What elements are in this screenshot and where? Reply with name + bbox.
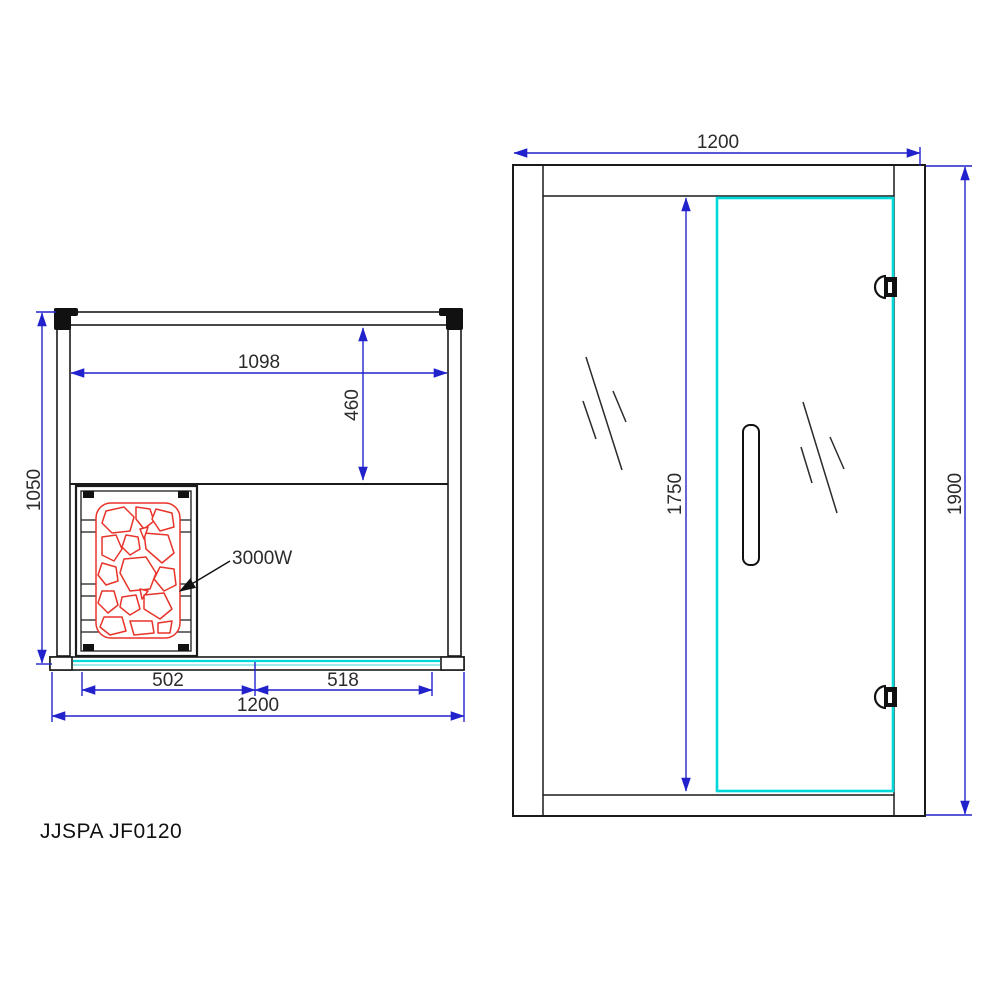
dim-plan-overall-width-value: 1200 [237, 695, 279, 716]
dim-bench-depth: 460 [342, 328, 363, 480]
heater-bracket [83, 644, 94, 651]
door-hinge-top [875, 276, 897, 298]
drawing-canvas: 3000W 1050 1098 460 [0, 0, 1000, 1000]
plan-top-wall [55, 312, 462, 325]
dim-glass-height-value: 1750 [665, 473, 686, 515]
dim-depth: 1050 [24, 312, 56, 664]
stone [130, 621, 154, 635]
door-hinge-bottom [875, 686, 897, 708]
dim-depth-value: 1050 [24, 469, 45, 511]
corner-post-body [54, 308, 71, 330]
model-number: JJSPA JF0120 [40, 820, 182, 843]
dim-overall-height: 1900 [926, 166, 972, 815]
dim-front-overall-width: 1200 [514, 132, 920, 166]
corner-post-body [446, 308, 463, 330]
dim-bench-depth-value: 460 [342, 389, 363, 421]
hinge-slot [888, 282, 892, 293]
hinge-slot [888, 692, 892, 703]
dim-interior-width-value: 1098 [238, 352, 280, 373]
front-wall-cap-left [50, 657, 72, 670]
heater-bracket [178, 491, 189, 498]
front-wall-band [50, 657, 464, 670]
front-view: 1200 1750 1900 [513, 132, 972, 816]
plan-view: 3000W 1050 1098 460 [24, 308, 464, 722]
heater-stones [96, 503, 180, 638]
dim-interior-width: 1098 [71, 352, 447, 373]
dim-front-left-value: 502 [152, 670, 184, 691]
plan-front-glass-wall [50, 657, 464, 670]
heater-bracket [83, 491, 94, 498]
plan-right-wall [448, 312, 461, 656]
dim-plan-overall-width: 1200 [52, 672, 464, 722]
front-frame-outline [513, 165, 925, 816]
plan-left-wall [57, 312, 70, 656]
dim-front-door-value: 518 [327, 670, 359, 691]
heater-bracket [178, 644, 189, 651]
door-handle[interactable] [743, 425, 759, 565]
stone [158, 621, 172, 633]
heater [76, 486, 197, 656]
dim-front-overall-width-value: 1200 [697, 132, 739, 153]
front-wall-cap-right [441, 657, 464, 670]
heater-power-label: 3000W [232, 548, 292, 569]
technical-drawing: 3000W 1050 1098 460 [0, 0, 1000, 1000]
dim-overall-height-value: 1900 [945, 473, 966, 515]
